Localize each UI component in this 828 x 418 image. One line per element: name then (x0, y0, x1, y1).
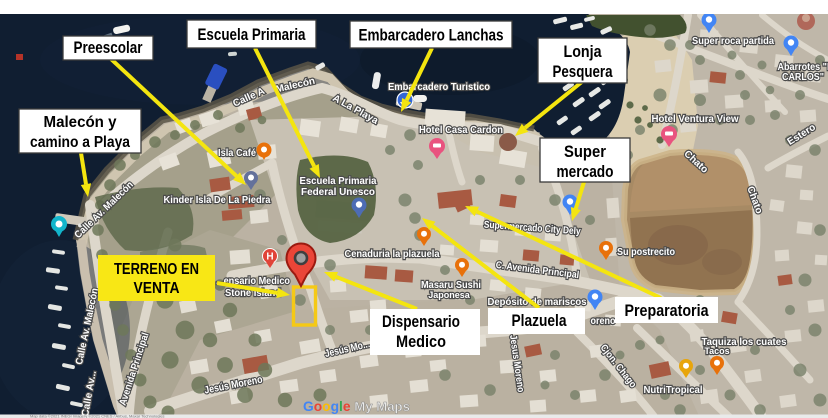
svg-text:Super: Super (564, 143, 607, 161)
svg-text:Tacos: Tacos (704, 346, 729, 356)
svg-text:NutriTropical: NutriTropical (644, 384, 703, 396)
svg-text:Japonesa: Japonesa (428, 290, 471, 300)
svg-text:Embarcadero Lanchas: Embarcadero Lanchas (359, 27, 504, 45)
svg-text:Preparatoria: Preparatoria (625, 302, 710, 320)
svg-text:Embarcadero Turistico: Embarcadero Turistico (388, 81, 490, 93)
svg-text:Lonja: Lonja (564, 43, 603, 61)
svg-text:Dispensario: Dispensario (382, 313, 460, 331)
svg-text:CARLOS": CARLOS" (782, 71, 824, 83)
svg-text:Pesquera: Pesquera (553, 63, 614, 81)
svg-text:Plazuela: Plazuela (512, 312, 568, 330)
svg-text:Hotel Casa Cardon: Hotel Casa Cardon (419, 124, 503, 136)
svg-text:VENTA: VENTA (134, 280, 180, 297)
svg-text:camino a Playa: camino a Playa (30, 134, 130, 151)
svg-text:Google My Maps: Google My Maps (303, 399, 410, 414)
svg-text:TERRENO EN: TERRENO EN (114, 261, 199, 278)
svg-text:H: H (266, 252, 273, 263)
svg-text:Su postrecito: Su postrecito (617, 246, 675, 258)
svg-text:oreno: oreno (591, 316, 616, 327)
svg-text:Hotel Ventura View: Hotel Ventura View (652, 113, 740, 125)
svg-text:Federal Unesco: Federal Unesco (301, 186, 375, 198)
svg-text:Preescolar: Preescolar (74, 39, 143, 57)
svg-text:Kinder Isla De La Piedra: Kinder Isla De La Piedra (164, 194, 271, 206)
svg-text:Cenaduria la plazuela: Cenaduria la plazuela (345, 249, 440, 260)
svg-text:Super roca partida: Super roca partida (692, 35, 774, 47)
svg-text:Escuela Primaria: Escuela Primaria (198, 26, 307, 44)
svg-text:mercado: mercado (557, 163, 614, 181)
svg-text:Isla Café: Isla Café (218, 147, 256, 159)
svg-text:Malecón y: Malecón y (44, 114, 117, 131)
svg-text:Medico: Medico (396, 333, 446, 351)
svg-text:Map data ©2021 INEGI Imagery: Map data ©2021 INEGI Imagery ©2021 CNES … (30, 413, 165, 418)
